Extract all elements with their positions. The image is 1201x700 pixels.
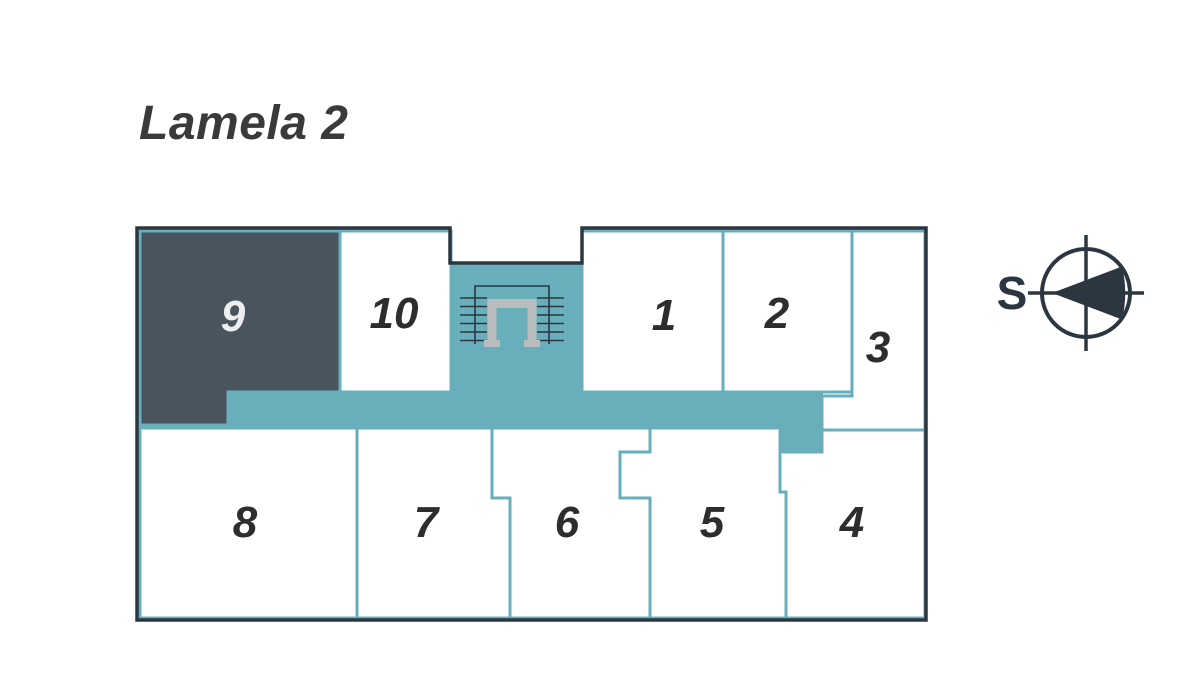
floor-plan-canvas: Lamela 2 9 10 1 2 3 8 7: [0, 0, 1201, 700]
floorplan-page: Lamela 2 9 10 1 2 3 8 7: [0, 0, 1201, 700]
unit-4-label: 4: [839, 498, 864, 547]
compass-needle: [1052, 267, 1125, 320]
unit-5-label: 5: [700, 498, 725, 547]
unit-1-label: 1: [652, 291, 676, 340]
compass-south-label: S: [997, 267, 1028, 319]
unit-9-label: 9: [221, 292, 246, 341]
unit-7-label: 7: [414, 498, 441, 547]
compass-icon: S: [997, 235, 1144, 351]
unit-10-label: 10: [370, 289, 419, 338]
page-title: Lamela 2: [139, 97, 348, 150]
stair-railing-foot-right: [524, 340, 540, 347]
unit-8-label: 8: [233, 498, 258, 547]
unit-2-label: 2: [764, 289, 790, 338]
stair-railing-foot-left: [484, 340, 500, 347]
unit-6-label: 6: [555, 498, 580, 547]
unit-3-label: 3: [866, 323, 890, 372]
